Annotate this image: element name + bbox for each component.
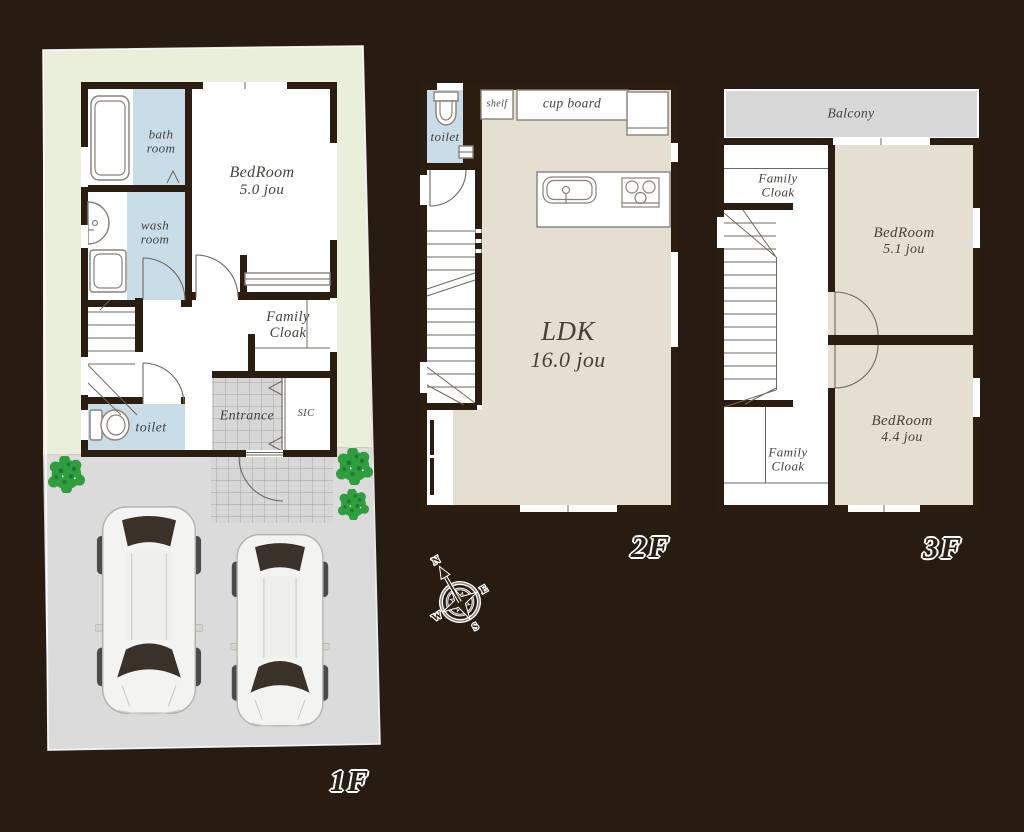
label-washroom-line1: wash xyxy=(141,219,170,233)
label-family-cloak-3f-top-line2: Cloak xyxy=(758,186,797,200)
label-bathroom: bath room xyxy=(147,128,176,157)
label-ldk: LDK 16.0 jou xyxy=(530,316,605,372)
label-bedroom-1f-line1: BedRoom xyxy=(229,164,294,182)
compass-n: N xyxy=(430,554,442,568)
bedroom-closet xyxy=(245,273,330,285)
label-family-cloak-1f-line1: Family xyxy=(266,310,309,326)
refrigerator-icon xyxy=(627,92,668,135)
label-bedroom-1f: BedRoom 5.0 jou xyxy=(229,164,294,198)
label-cupboard: cup board xyxy=(543,97,601,112)
label-bathroom-line2: room xyxy=(147,142,176,156)
label-family-cloak-3f-bottom-line1: Family xyxy=(768,446,807,460)
label-entrance-text: Entrance xyxy=(220,408,275,423)
washing-machine-icon xyxy=(90,250,126,292)
label-washroom-line2: room xyxy=(141,233,170,247)
label-family-cloak-1f: Family Cloak xyxy=(266,310,309,342)
label-balcony: Balcony xyxy=(827,107,874,122)
label-bedroom-4-4-line1: BedRoom xyxy=(871,413,932,430)
floor-tag-2f: 2F xyxy=(631,529,671,565)
label-toilet-1f: toilet xyxy=(135,420,166,435)
label-family-cloak-3f-top-line1: Family xyxy=(758,172,797,186)
house-1f xyxy=(81,82,337,457)
floor-tag-3f: 3F xyxy=(923,530,963,566)
label-bathroom-line1: bath xyxy=(147,128,176,142)
label-toilet-2f-text: toilet xyxy=(430,130,459,144)
label-shelf-text: shelf xyxy=(487,99,508,110)
bathtub-icon xyxy=(91,96,129,180)
label-family-cloak-1f-line2: Cloak xyxy=(266,326,309,342)
house-3f xyxy=(717,90,980,512)
label-ldk-line1: LDK xyxy=(530,316,605,347)
label-bedroom-1f-line2: 5.0 jou xyxy=(229,182,294,199)
label-ldk-line2: 16.0 jou xyxy=(530,347,605,372)
floorplan: N E S W bath room wash room BedRoom 5.0 … xyxy=(0,0,1024,832)
label-bedroom-4-4-line2: 4.4 jou xyxy=(871,430,932,445)
label-bedroom-5-1-line1: BedRoom xyxy=(873,225,934,242)
label-bedroom-5-1-line2: 5.1 jou xyxy=(873,242,934,257)
label-washroom: wash room xyxy=(141,219,170,248)
label-toilet-2f: toilet xyxy=(430,130,459,144)
label-sic-text: SIC xyxy=(298,408,315,420)
house-2f xyxy=(420,83,678,512)
label-shelf: shelf xyxy=(487,99,508,110)
kitchen-island xyxy=(537,172,670,227)
car-icon xyxy=(95,507,203,714)
toilet-icon-1f xyxy=(90,410,129,440)
compass-e: E xyxy=(478,583,490,596)
label-balcony-text: Balcony xyxy=(827,107,874,122)
floor-tag-1f: 1F xyxy=(330,763,370,799)
porch xyxy=(211,457,333,523)
floorplan-drawing: N E S W xyxy=(0,0,1024,832)
front-door xyxy=(246,450,283,457)
label-family-cloak-3f-bottom-line2: Cloak xyxy=(768,460,807,474)
room-ldk xyxy=(482,90,671,505)
label-family-cloak-3f-top: Family Cloak xyxy=(758,172,797,201)
label-sic: SIC xyxy=(298,408,315,420)
car-icon xyxy=(230,535,330,727)
compass-s: S xyxy=(470,621,481,634)
label-bedroom-4-4: BedRoom 4.4 jou xyxy=(871,413,932,445)
label-toilet-1f-text: toilet xyxy=(135,420,166,435)
compass-icon: N E S W xyxy=(406,541,504,649)
label-bedroom-5-1: BedRoom 5.1 jou xyxy=(873,225,934,257)
label-cupboard-text: cup board xyxy=(543,97,601,112)
label-family-cloak-3f-bottom: Family Cloak xyxy=(768,446,807,475)
label-entrance: Entrance xyxy=(220,408,275,423)
